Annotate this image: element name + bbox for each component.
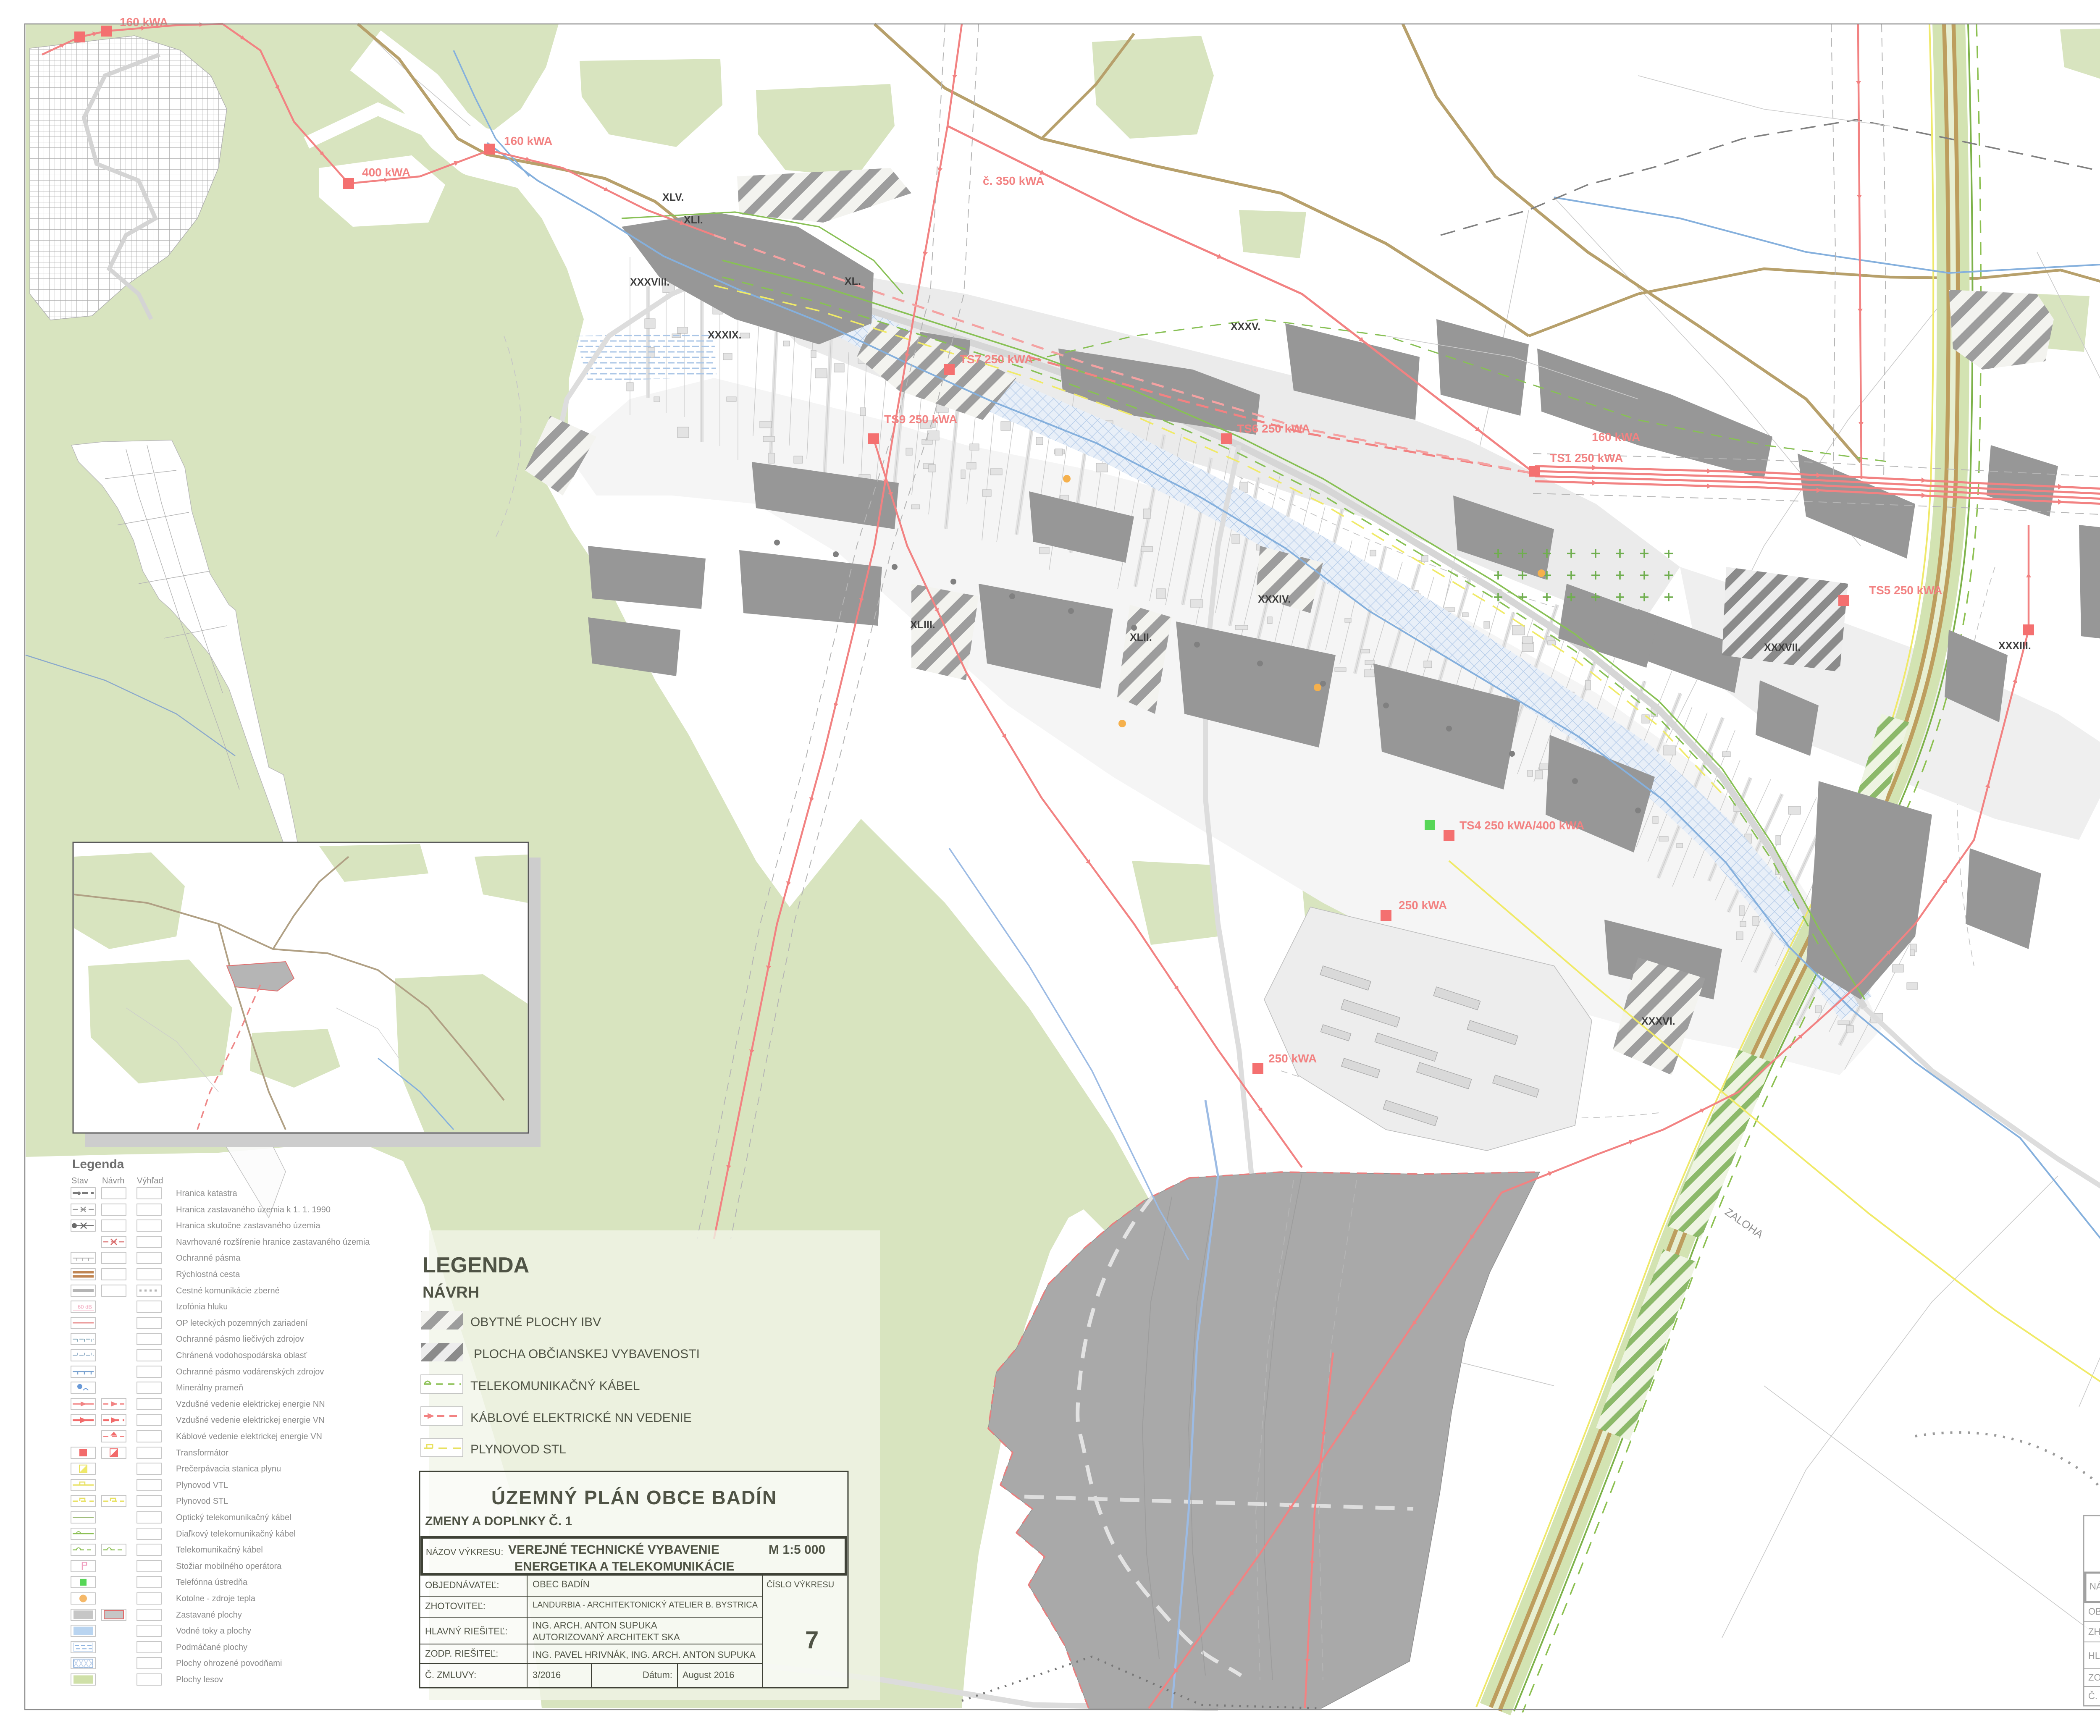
svg-text:XLII.: XLII. — [1130, 632, 1152, 643]
svg-text:Káblové vedenie elektrickej en: Káblové vedenie elektrickej energie VN — [176, 1432, 322, 1441]
svg-text:Legenda: Legenda — [72, 1157, 124, 1171]
svg-text:XXXV.: XXXV. — [1231, 321, 1260, 333]
svg-text:XXXVII.: XXXVII. — [1764, 642, 1801, 653]
svg-text:č. 350 kWA: č. 350 kWA — [983, 174, 1044, 187]
svg-text:60 dB: 60 dB — [78, 1304, 92, 1310]
svg-text:OBEC BADÍN: OBEC BADÍN — [533, 1579, 590, 1589]
svg-text:250 kWA: 250 kWA — [1399, 899, 1447, 912]
svg-text:7: 7 — [805, 1626, 819, 1654]
svg-text:TS9 250 kWA: TS9 250 kWA — [884, 413, 957, 426]
svg-text:Stav: Stav — [71, 1176, 88, 1185]
svg-text:OBJEDNÁVATEĽ:: OBJEDNÁVATEĽ: — [2088, 1606, 2100, 1617]
svg-text:XXXVIII.: XXXVIII. — [630, 276, 669, 288]
svg-text:XXXIV.: XXXIV. — [1258, 593, 1291, 605]
svg-text:Telekomunikačný kábel: Telekomunikačný kábel — [176, 1545, 263, 1555]
svg-text:M 1:5 000: M 1:5 000 — [769, 1543, 825, 1557]
svg-text:Podmáčané plochy: Podmáčané plochy — [176, 1643, 247, 1652]
svg-text:XLV.: XLV. — [662, 191, 684, 203]
svg-text:ZODP. RIEŠITEĽ:: ZODP. RIEŠITEĽ: — [2088, 1672, 2100, 1683]
svg-text:Navrhované rozšírenie hranice: Navrhované rozšírenie hranice zastavanéh… — [176, 1238, 370, 1247]
svg-text:LANDURBIA - ARCHITEKTONICKÝ A: LANDURBIA - ARCHITEKTONICKÝ ATELIER B. B… — [533, 1600, 758, 1610]
svg-text:ZHOTOVITEĽ:: ZHOTOVITEĽ: — [2088, 1626, 2100, 1637]
svg-text:Stožiar mobilného operátora: Stožiar mobilného operátora — [176, 1562, 282, 1571]
svg-text:ZHOTOVITEĽ:: ZHOTOVITEĽ: — [425, 1601, 486, 1611]
svg-text:Návrh: Návrh — [102, 1176, 124, 1185]
svg-text:Telefónna ústredňa: Telefónna ústredňa — [176, 1578, 248, 1587]
svg-text:TS5 250 kWA: TS5 250 kWA — [1869, 584, 1942, 597]
svg-text:160 kWA: 160 kWA — [1592, 430, 1640, 443]
svg-text:OP leteckých pozemných zariade: OP leteckých pozemných zariadení — [176, 1319, 308, 1328]
svg-text:160 kWA: 160 kWA — [120, 16, 168, 29]
svg-text:160 kWA: 160 kWA — [504, 134, 552, 147]
svg-text:3/2016: 3/2016 — [533, 1670, 561, 1680]
svg-text:TS4 250 kWA/400 kWA: TS4 250 kWA/400 kWA — [1459, 819, 1584, 832]
svg-text:Vodné toky a plochy: Vodné toky a plochy — [176, 1626, 251, 1636]
svg-text:ING. ARCH. ANTON SUPUKA: ING. ARCH. ANTON SUPUKA — [533, 1620, 657, 1631]
svg-text:Izofónia hluku: Izofónia hluku — [176, 1302, 228, 1311]
svg-text:Zastavané plochy: Zastavané plochy — [176, 1610, 242, 1620]
svg-text:Diaľkový telekomunikačný kábel: Diaľkový telekomunikačný kábel — [176, 1529, 296, 1539]
svg-text:Vzdušné vedenie elektrickej en: Vzdušné vedenie elektrickej energie VN — [176, 1416, 325, 1425]
svg-text:ZMENY A DOPLNKY Č. 1: ZMENY A DOPLNKY Č. 1 — [425, 1514, 572, 1528]
svg-text:Chránená vodohospodárska oblas: Chránená vodohospodárska oblasť — [176, 1351, 307, 1360]
svg-text:Rýchlostná cesta: Rýchlostná cesta — [176, 1270, 240, 1279]
svg-text:Hranica zastavaného územia k 1: Hranica zastavaného územia k 1. 1. 1990 — [176, 1205, 331, 1214]
svg-text:Plynovod STL: Plynovod STL — [176, 1497, 228, 1506]
svg-text:Minerálny prameň: Minerálny prameň — [176, 1383, 243, 1392]
svg-text:Výhľad: Výhľad — [137, 1176, 163, 1185]
svg-text:NÁZOV VÝKRESU: NÁZOV VÝKRESU — [2089, 1581, 2100, 1592]
svg-text:XL.: XL. — [845, 275, 861, 287]
svg-text:NÁVRH: NÁVRH — [423, 1283, 479, 1301]
svg-text:Prečerpávacia stanica plynu: Prečerpávacia stanica plynu — [176, 1464, 281, 1474]
svg-text:XXXIII.: XXXIII. — [1998, 640, 2031, 652]
svg-text:HLAVNÝ RIEŠITEĽ:: HLAVNÝ RIEŠITEĽ: — [2088, 1650, 2100, 1661]
svg-text:Ochranné pásmo vodárenských zd: Ochranné pásmo vodárenských zdrojov — [176, 1367, 324, 1377]
svg-text:250 kWA: 250 kWA — [1268, 1052, 1317, 1065]
svg-text:HLAVNÝ RIEŠITEĽ:: HLAVNÝ RIEŠITEĽ: — [425, 1626, 507, 1636]
svg-text:Vzdušné vedenie elektrickej en: Vzdušné vedenie elektrickej energie NN — [176, 1400, 325, 1409]
svg-text:TS1 250 kWA: TS1 250 kWA — [1550, 451, 1623, 464]
svg-text:Hranica katastra: Hranica katastra — [176, 1189, 237, 1198]
svg-text:Plochy ohrozené povodňami: Plochy ohrozené povodňami — [176, 1659, 282, 1668]
svg-text:Dátum:: Dátum: — [643, 1670, 672, 1680]
svg-text:Plochy lesov: Plochy lesov — [176, 1675, 223, 1684]
svg-text:Plynovod VTL: Plynovod VTL — [176, 1481, 228, 1490]
svg-text:VEREJNÉ TECHNICKÉ VYBAVENIE: VEREJNÉ TECHNICKÉ VYBAVENIE — [508, 1542, 719, 1557]
svg-text:Hranica skutočne zastavaného ú: Hranica skutočne zastavaného územia — [176, 1221, 320, 1230]
svg-text:400 kWA: 400 kWA — [362, 166, 410, 179]
svg-text:NÁZOV VÝKRESU:: NÁZOV VÝKRESU: — [426, 1547, 503, 1557]
svg-text:ENERGETIKA A TELEKOMUNIKÁCIE: ENERGETIKA A TELEKOMUNIKÁCIE — [514, 1559, 734, 1573]
svg-text:TS6 250 kWA: TS6 250 kWA — [1237, 422, 1310, 435]
svg-text:TELEKOMUNIKAČNÝ KÁBEL: TELEKOMUNIKAČNÝ KÁBEL — [470, 1379, 640, 1393]
svg-text:Cestné komunikácie zberné: Cestné komunikácie zberné — [176, 1286, 280, 1295]
svg-text:XLI.: XLI. — [684, 214, 703, 226]
svg-text:Ochranné pásmo liečivých zdroj: Ochranné pásmo liečivých zdrojov — [176, 1335, 304, 1344]
svg-text:Kotolne - zdroje tepla: Kotolne - zdroje tepla — [176, 1594, 256, 1603]
svg-text:OBJEDNÁVATEĽ:: OBJEDNÁVATEĽ: — [425, 1580, 499, 1590]
svg-text:Ochranné pásma: Ochranné pásma — [176, 1253, 241, 1263]
svg-text:Č. ZMLUVY:: Č. ZMLUVY: — [2088, 1691, 2100, 1701]
svg-text:Optický telekomunikačný kábel: Optický telekomunikačný kábel — [176, 1513, 291, 1522]
svg-text:KÁBLOVÉ ELEKTRICKÉ NN VEDENIE: KÁBLOVÉ ELEKTRICKÉ NN VEDENIE — [470, 1411, 692, 1425]
svg-text:ÚZEMNÝ PLÁN OBCE BADÍN: ÚZEMNÝ PLÁN OBCE BADÍN — [491, 1487, 777, 1508]
svg-text:OBYTNÉ PLOCHY IBV: OBYTNÉ PLOCHY IBV — [470, 1315, 601, 1329]
svg-text:XXXVI.: XXXVI. — [1641, 1015, 1675, 1027]
svg-text:PLOCHA OBČIANSKEJ VYBAVENOSTI: PLOCHA OBČIANSKEJ VYBAVENOSTI — [474, 1347, 700, 1361]
svg-text:PLYNOVOD STL: PLYNOVOD STL — [470, 1442, 566, 1456]
svg-text:ČÍSLO VÝKRESU: ČÍSLO VÝKRESU — [766, 1580, 834, 1589]
svg-text:XXXIX.: XXXIX. — [708, 329, 742, 341]
svg-text:Transformátor: Transformátor — [176, 1448, 228, 1458]
svg-text:August 2016: August 2016 — [682, 1670, 735, 1680]
svg-text:ING. PAVEL HRIVNÁK, ING. ARCH.: ING. PAVEL HRIVNÁK, ING. ARCH. ANTON SUP… — [533, 1649, 756, 1660]
svg-text:ZODP. RIEŠITEĽ:: ZODP. RIEŠITEĽ: — [425, 1648, 498, 1659]
svg-text:AUTORIZOVANÝ ARCHITEKT SKA: AUTORIZOVANÝ ARCHITEKT SKA — [533, 1632, 680, 1642]
svg-text:LEGENDA: LEGENDA — [423, 1253, 529, 1277]
svg-text:Č. ZMLUVY:: Č. ZMLUVY: — [425, 1670, 476, 1680]
svg-text:TS7 250 kWA: TS7 250 kWA — [960, 353, 1033, 366]
svg-text:XLIII.: XLIII. — [910, 619, 935, 631]
